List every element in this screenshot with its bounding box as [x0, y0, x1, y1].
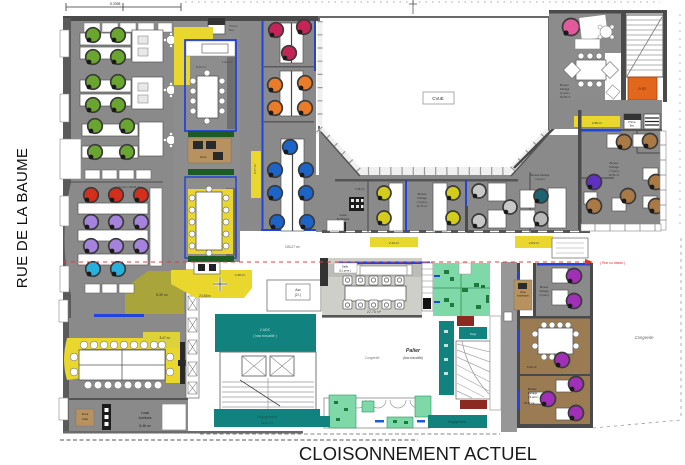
svg-text:2.98 m²: 2.98 m² [592, 121, 602, 125]
svg-text:Bureau Partagé: Bureau Partagé [531, 173, 550, 177]
svg-text:8.39 m²: 8.39 m² [156, 293, 169, 297]
svg-text:( 4 pers.): ( 4 pers.) [535, 177, 546, 181]
svg-text:2 ADC: 2 ADC [260, 328, 271, 332]
svg-text:1.82 m²: 1.82 m² [222, 60, 232, 64]
svg-text:Congevite: Congevite [365, 356, 380, 360]
svg-text:25.27 m²: 25.27 m² [524, 401, 534, 405]
svg-text:CLOISONNEMENT ACTUEL: CLOISONNEMENT ACTUEL [299, 443, 537, 464]
svg-text:Local: Local [141, 411, 149, 415]
svg-text:Partagé: Partagé [417, 196, 427, 200]
svg-text:Bureau: Bureau [418, 192, 427, 196]
svg-text:22.73 m²: 22.73 m² [417, 204, 428, 208]
svg-text:CVuE: CVuE [432, 96, 444, 101]
svg-text:Café: Café [82, 417, 88, 421]
svg-text:( 3 pers.): ( 3 pers.) [528, 395, 539, 399]
svg-text:( 4 pers.): ( 4 pers.) [417, 200, 428, 204]
svg-text:Bureau: Bureau [610, 161, 619, 165]
svg-text:( bas travaillé ): ( bas travaillé ) [253, 334, 277, 338]
svg-text:Partagé: Partagé [539, 289, 549, 293]
svg-text:2.03 m²: 2.03 m² [529, 241, 539, 245]
svg-text:22.78 m²: 22.78 m² [367, 310, 382, 314]
svg-text:Partagé: Partagé [528, 391, 538, 395]
svg-text:Zone: Zone [82, 412, 89, 416]
svg-text:(4 pers.): (4 pers.) [560, 91, 570, 95]
svg-text:(bas travaillé): (bas travaillé) [403, 356, 423, 360]
svg-text:Dégagement: Dégagement [448, 420, 466, 424]
svg-text:Congevite: Congevite [635, 335, 655, 340]
svg-text:8.44 m²: 8.44 m² [527, 365, 537, 369]
svg-text:33.46 m²: 33.46 m² [609, 173, 620, 177]
svg-text:8.17 m²: 8.17 m² [253, 164, 257, 174]
svg-text:2+3/2: 2+3/2 [638, 87, 646, 91]
svg-text:Partagé: Partagé [560, 87, 570, 91]
svg-text:RUE DE LA BAUME: RUE DE LA BAUME [14, 148, 31, 288]
svg-text:7.88 m²: 7.88 m² [355, 187, 365, 191]
svg-text:Bureau: Bureau [560, 83, 569, 87]
svg-text:( 2 pers.): ( 2 pers.) [539, 293, 550, 297]
svg-text:Phone: Phone [628, 120, 636, 124]
svg-text:Impression: Impression [517, 295, 529, 298]
svg-text:Dégagement: Dégagement [257, 415, 278, 419]
svg-text:4.48 m²: 4.48 m² [235, 273, 245, 277]
svg-text:Partagé: Partagé [609, 165, 619, 169]
svg-text:5.3398: 5.3398 [110, 2, 120, 6]
svg-text:Archives: Archives [138, 416, 151, 420]
svg-text:26.05 m²: 26.05 m² [560, 95, 571, 99]
svg-text:23.83m²: 23.83m² [199, 294, 212, 298]
svg-text:( 7 pers.): ( 7 pers.) [609, 169, 620, 173]
svg-text:( Rue no distan ): ( Rue no distan ) [600, 261, 625, 265]
svg-text:Palier: Palier [406, 348, 421, 354]
svg-text:Asc: Asc [295, 288, 301, 292]
svg-text:Box: Box [630, 124, 635, 128]
svg-text:(2 l.): (2 l.) [295, 293, 302, 297]
svg-text:13.87 m²: 13.87 m² [261, 421, 273, 425]
svg-text:103.27 m²: 103.27 m² [285, 245, 301, 249]
svg-text:2.16 m²: 2.16 m² [389, 241, 399, 245]
svg-text:Bureau: Bureau [528, 387, 537, 391]
svg-text:8.40 m²: 8.40 m² [196, 65, 206, 69]
svg-text:Dégt: Dégt [470, 332, 477, 336]
svg-text:Box: Box [229, 28, 235, 32]
svg-text:Zone: Zone [200, 155, 207, 159]
svg-text:8.47 m²: 8.47 m² [160, 336, 171, 340]
svg-text:Bureau: Bureau [540, 285, 549, 289]
svg-text:8.46 m²: 8.46 m² [139, 424, 151, 428]
svg-text:(11 pers.): (11 pers.) [339, 269, 351, 273]
